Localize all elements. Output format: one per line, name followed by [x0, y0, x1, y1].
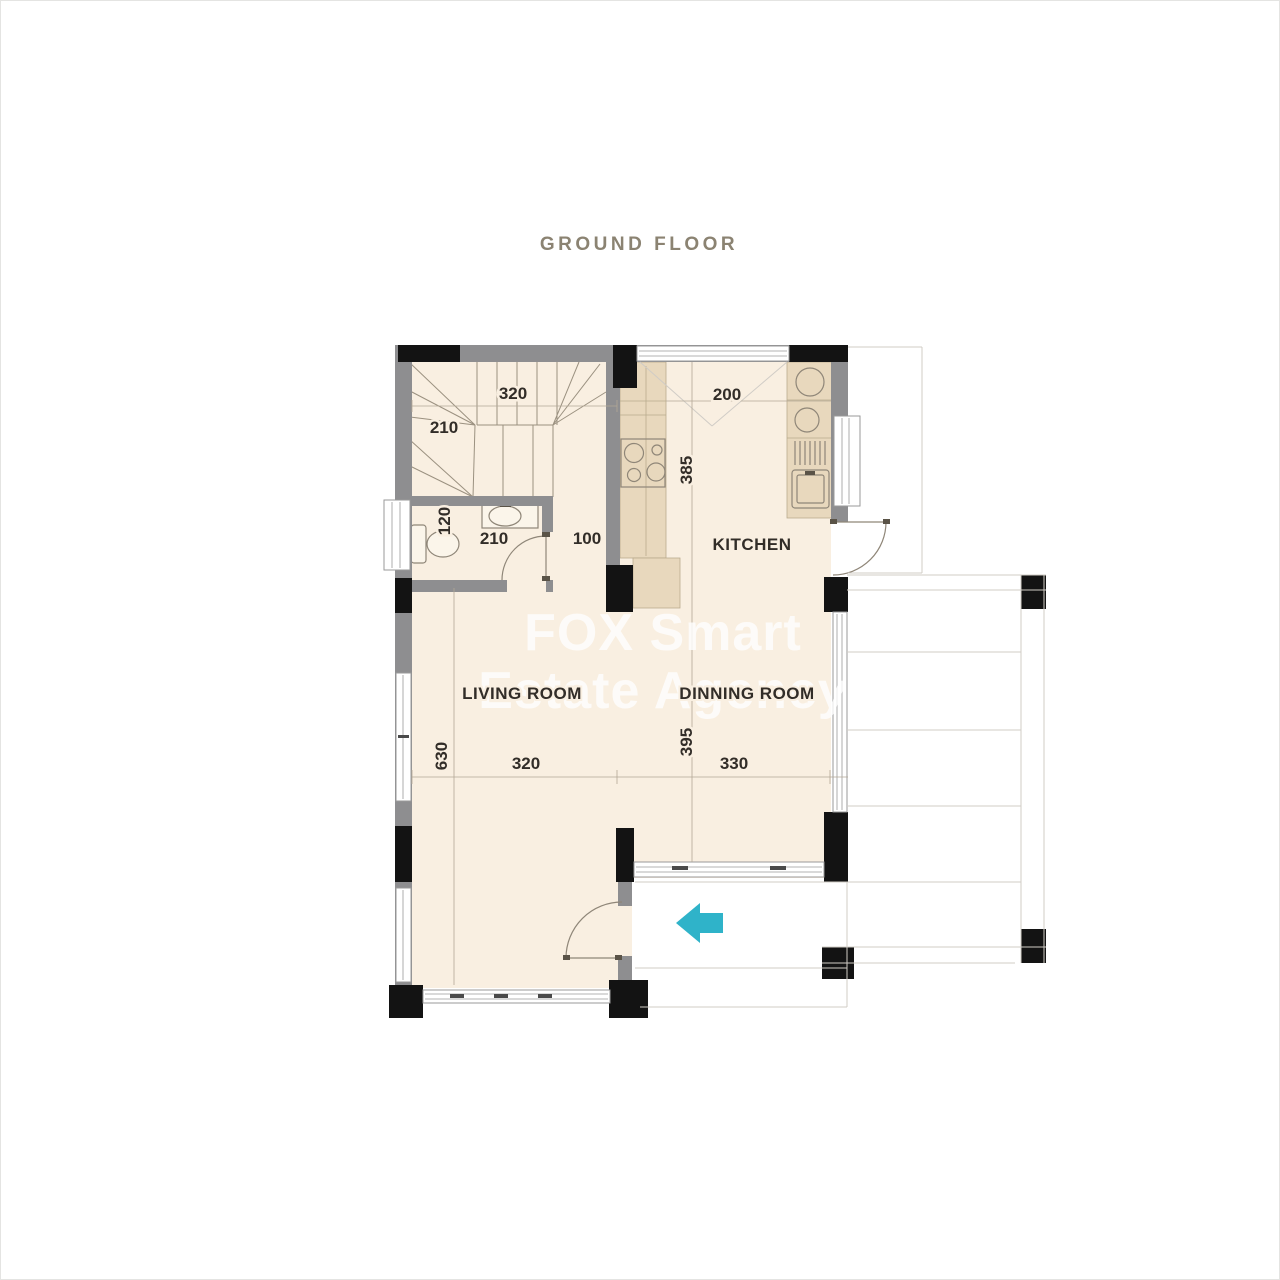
dim-wc-width: 210: [480, 529, 508, 548]
wc-window: [384, 500, 410, 570]
room-label-kitchen: KITCHEN: [712, 535, 791, 554]
entrance-arrow-icon: [676, 903, 723, 943]
living-left-window: [396, 673, 411, 801]
dim-dinning-depth: 395: [677, 728, 696, 756]
room-label-living: LIVING ROOM: [462, 684, 582, 703]
dim-hall-width: 100: [573, 529, 601, 548]
page-title: GROUND FLOOR: [540, 234, 738, 255]
floor-plan-drawing: GROUND FLOOR: [0, 0, 1280, 1280]
living-bottom-window: [423, 990, 610, 1003]
kitchen-door: [830, 519, 890, 575]
dim-dinning-width: 330: [720, 754, 748, 773]
dim-living-depth: 630: [432, 742, 451, 770]
dim-wc-depth: 120: [435, 507, 454, 535]
watermark-line1: FOX Smart: [524, 604, 802, 662]
dim-living-width: 320: [512, 754, 540, 773]
dim-kitchen-width: 200: [713, 385, 741, 404]
dim-stair-width: 320: [499, 384, 527, 403]
floor-plan-page: GROUND FLOOR: [0, 0, 1280, 1280]
living-left-lower-window: [396, 888, 411, 982]
kitchen-right-window: [834, 416, 860, 506]
dim-kitchen-depth: 385: [677, 456, 696, 484]
dim-stair-depth: 210: [430, 418, 458, 437]
room-label-dinning: DINNING ROOM: [679, 684, 814, 703]
dinning-bottom-window: [634, 862, 824, 877]
